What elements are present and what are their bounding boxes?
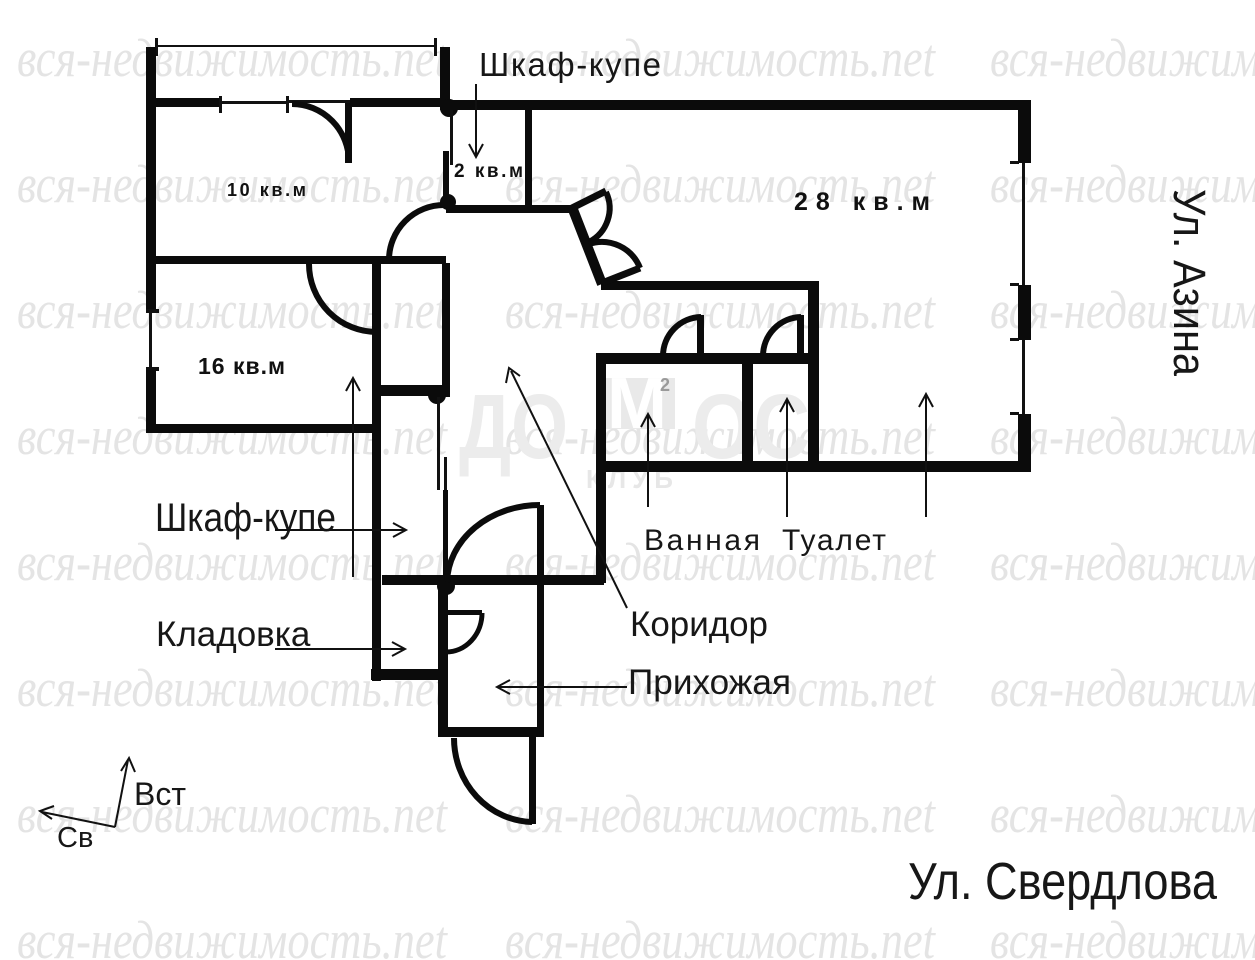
svg-text:вся-недвижимость.net: вся-недвижимость.net (990, 910, 1255, 960)
svg-text:16 кв.м: 16 кв.м (198, 353, 286, 379)
svg-text:вся-недвижимость.net: вся-недвижимость.net (17, 280, 449, 340)
svg-text:Вст: Вст (134, 776, 186, 812)
svg-text:Шкаф-купе: Шкаф-купе (479, 46, 661, 83)
svg-text:М: М (607, 364, 667, 444)
svg-text:10 кв.м: 10 кв.м (227, 180, 306, 200)
svg-text:Коридор: Коридор (630, 605, 768, 644)
svg-text:ДО: ДО (459, 376, 568, 478)
svg-text:2: 2 (660, 375, 670, 395)
svg-text:вся-недвижимость.net: вся-недвижимость.net (17, 28, 449, 88)
svg-text:вся-недвижимость.net: вся-недвижимость.net (17, 910, 449, 960)
svg-text:вся-недвижимость.net: вся-недвижимость.net (505, 910, 937, 960)
svg-text:вся-недвижимость.net: вся-недвижимость.net (17, 658, 449, 718)
svg-text:Прихожая: Прихожая (628, 663, 791, 702)
svg-text:2 кв.м: 2 кв.м (454, 161, 523, 182)
svg-text:Св: Св (57, 822, 93, 854)
svg-text:Ул. Азина: Ул. Азина (1164, 189, 1215, 377)
svg-text:вся-недвижимость.net: вся-недвижимость.net (990, 658, 1255, 718)
svg-text:вся-недвижимость.net: вся-недвижимость.net (17, 406, 449, 466)
svg-text:вся-недвижимость.net: вся-недвижимость.net (990, 28, 1255, 88)
svg-text:вся-недвижимость.net: вся-недвижимость.net (990, 784, 1255, 844)
svg-text:вся-недвижимость.net: вся-недвижимость.net (990, 532, 1255, 592)
svg-text:вся-недвижимость.net: вся-недвижимость.net (505, 784, 937, 844)
svg-text:Шкаф-купе: Шкаф-купе (155, 496, 336, 540)
svg-text:Ул. Свердлова: Ул. Свердлова (908, 853, 1217, 911)
